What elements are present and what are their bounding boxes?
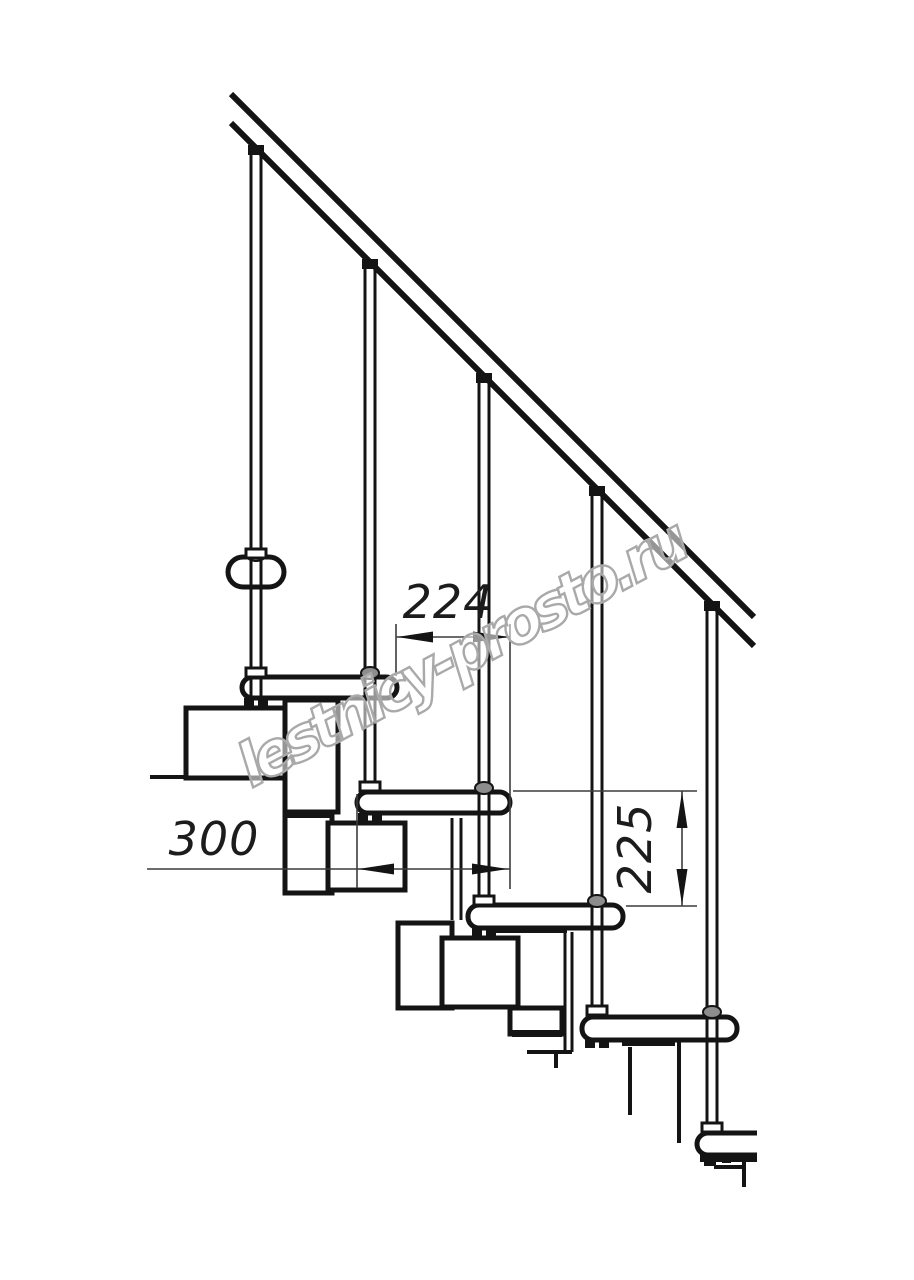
- baluster: [702, 601, 722, 1132]
- tread-partial: [697, 1133, 757, 1155]
- dimension-label-run: 224: [403, 575, 494, 629]
- tread: [582, 1017, 737, 1040]
- staircase-technical-drawing: lestnicy-prosto.ru 224 300 225: [0, 0, 914, 1280]
- baluster: [246, 145, 266, 698]
- dimension-label-depth: 300: [169, 812, 260, 866]
- tread: [357, 792, 510, 813]
- module-chain: [150, 700, 744, 1187]
- dimension-225: [513, 791, 697, 906]
- module-box: [285, 812, 332, 893]
- arrow-down-icon: [677, 869, 688, 905]
- arrow-up-icon: [677, 792, 688, 828]
- module-box: [442, 938, 518, 1007]
- module-box: [328, 823, 405, 890]
- tread: [468, 905, 623, 928]
- drawing-canvas: lestnicy-prosto.ru 224 300 225: [0, 0, 914, 1280]
- watermark-text: lestnicy-prosto.ru: [226, 505, 700, 801]
- dimension-label-rise: 225: [608, 803, 662, 894]
